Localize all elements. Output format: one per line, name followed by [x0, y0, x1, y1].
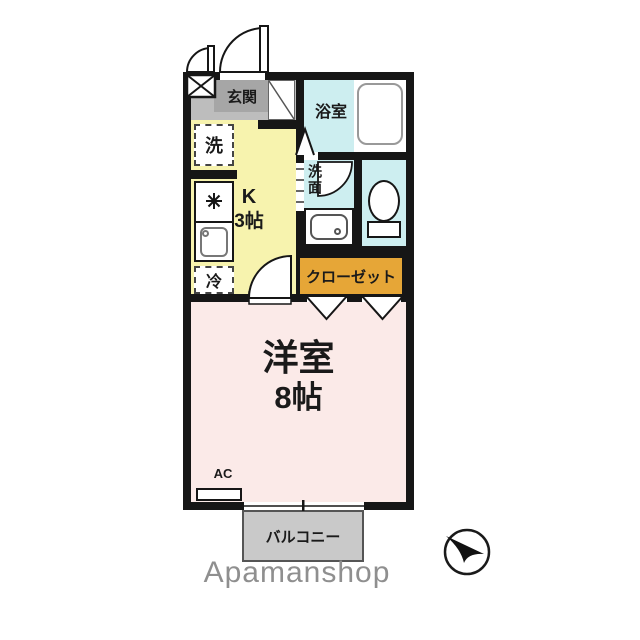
kitchen-label-line2: 3帖	[214, 210, 284, 235]
entrance-label-text: 玄関	[227, 86, 257, 107]
bathtub-icon	[357, 83, 403, 145]
ac-label: AC	[200, 466, 246, 481]
ac-unit-icon	[196, 488, 242, 501]
balcony: バルコニー	[242, 510, 364, 562]
room-label: 洋室 8帖	[191, 336, 406, 416]
north-arrow-icon	[440, 525, 496, 581]
wall-segment	[401, 294, 406, 302]
washroom-label: 洗面	[307, 164, 325, 196]
wall-segment	[318, 152, 406, 160]
room-label-line2: 8帖	[191, 379, 406, 416]
closet: クローゼット	[296, 254, 406, 298]
toilet-icon	[368, 180, 400, 222]
laundry-label: 洗	[205, 132, 223, 158]
wall-segment	[291, 294, 307, 302]
bathroom-label-text: 浴室	[315, 104, 347, 121]
toilet-tank-icon	[367, 221, 401, 238]
kitchen-label-line1: K	[214, 184, 284, 210]
wall-segment	[191, 170, 237, 179]
washroom-label-text: 洗面	[307, 164, 323, 196]
room-label-line1: 洋室	[191, 336, 406, 379]
kitchen-label: K 3帖	[214, 184, 284, 235]
watermark-text: Apamanshop	[204, 556, 391, 589]
wall-segment	[354, 160, 362, 246]
balcony-label: バルコニー	[266, 526, 341, 547]
shoe-cabinet	[268, 80, 295, 120]
wall-segment	[296, 80, 304, 164]
watermark: Apamanshop	[157, 556, 437, 590]
meter-door-arc	[187, 48, 211, 72]
bathroom-label: 浴室	[306, 98, 356, 122]
laundry-space: 洗	[194, 124, 234, 166]
wall-segment	[191, 294, 249, 302]
wall-segment	[296, 246, 406, 254]
floor-plan: 玄関 洗 冷 K 3帖 浴室 洗面 クローゼット	[0, 0, 640, 640]
refrigerator-space: 冷	[194, 266, 234, 294]
refrigerator-label: 冷	[206, 268, 222, 292]
wall-segment	[258, 120, 296, 129]
meter-door-leaf	[208, 46, 214, 72]
north-arrow-svg	[440, 525, 496, 581]
faucet-icon	[334, 228, 341, 235]
closet-label: クローゼット	[306, 266, 396, 287]
wall-segment	[347, 294, 362, 302]
entrance-door-leaf	[260, 26, 268, 72]
entrance-label: 玄関	[214, 80, 270, 112]
faucet-icon	[202, 230, 209, 237]
ac-label-text: AC	[214, 466, 233, 481]
sink-basin-icon	[310, 214, 348, 240]
entrance-door-arc	[220, 28, 264, 72]
